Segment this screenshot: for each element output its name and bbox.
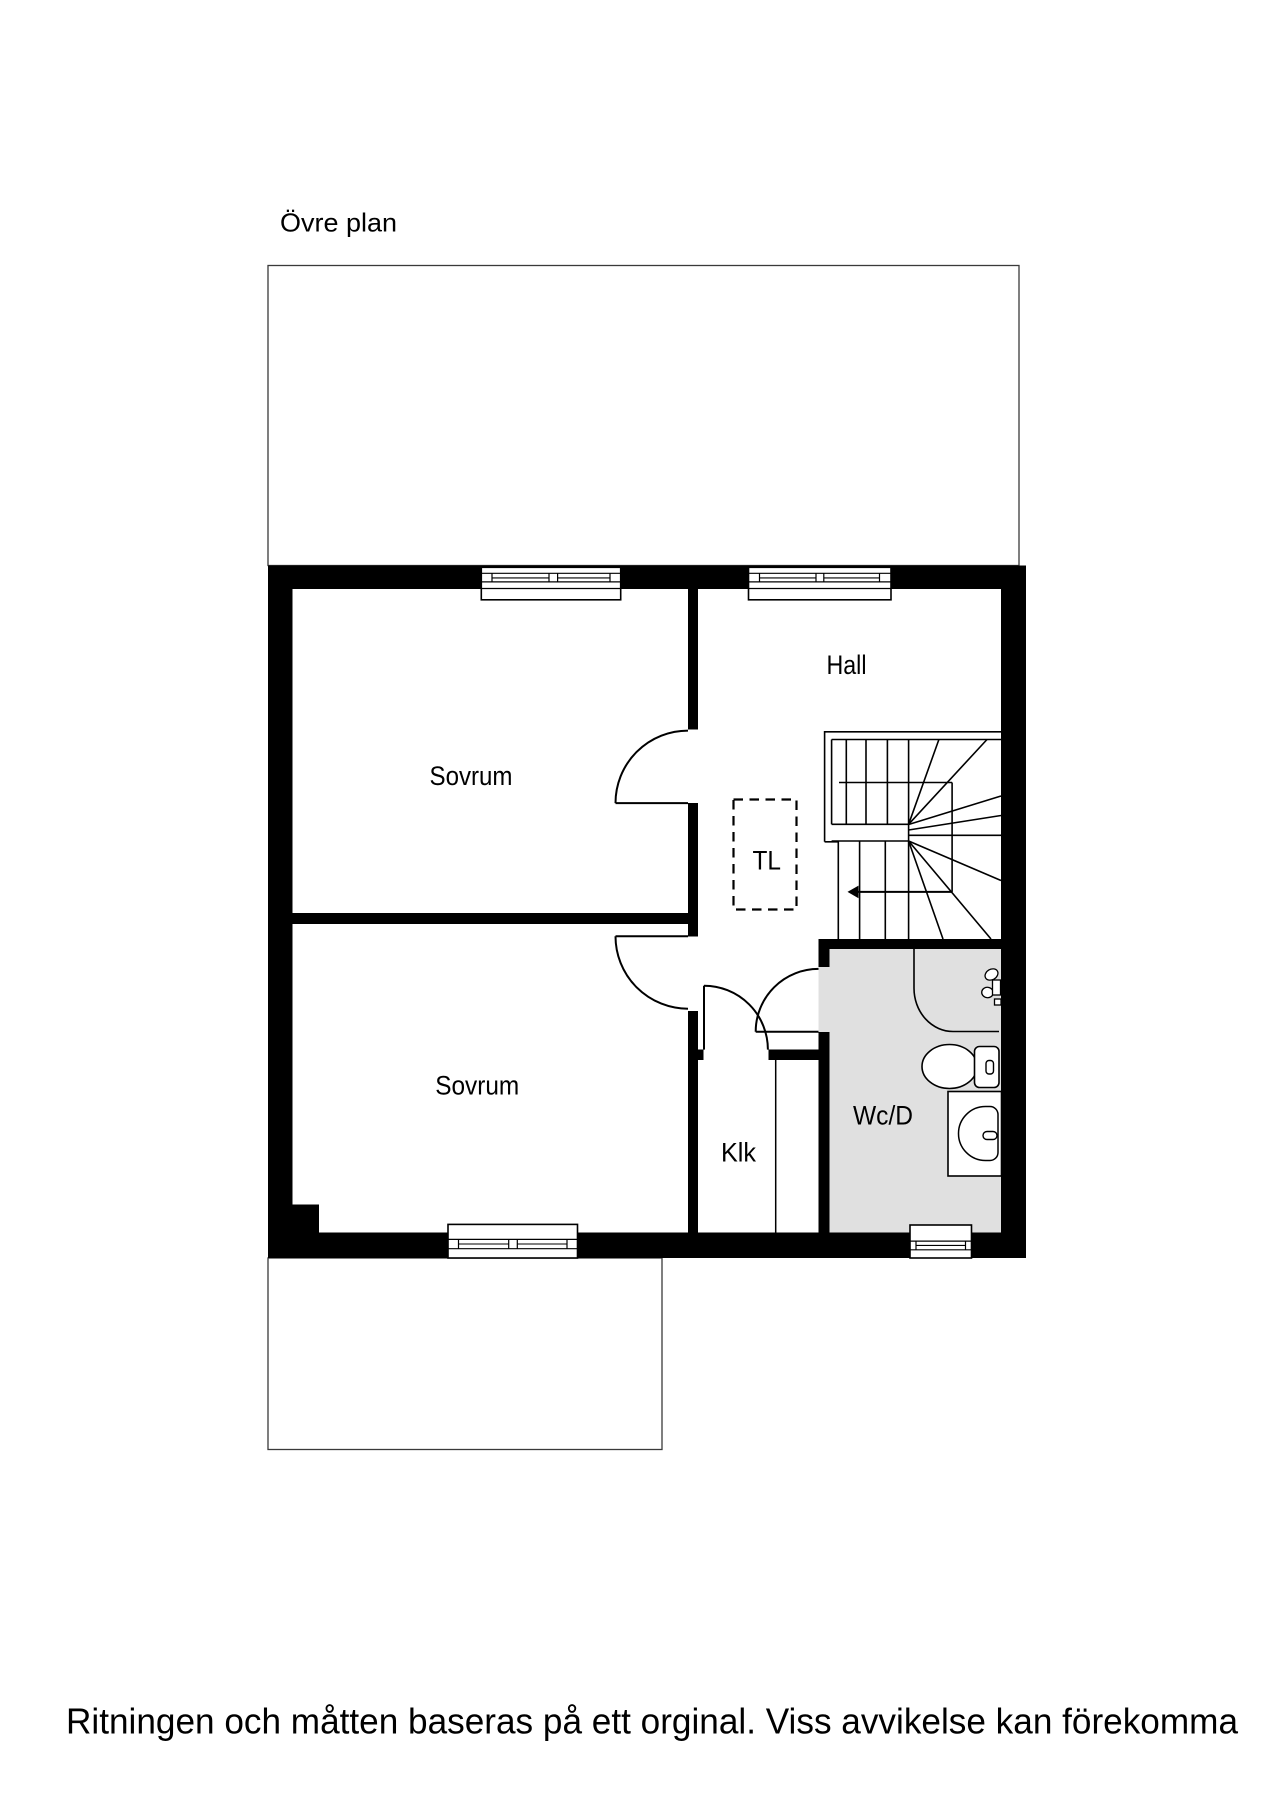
svg-text:Wc/D: Wc/D [853,1101,913,1131]
svg-text:Hall: Hall [827,650,867,680]
svg-text:Klk: Klk [721,1138,756,1168]
svg-text:Övre plan: Övre plan [280,207,397,237]
svg-text:Ritningen och måtten baseras p: Ritningen och måtten baseras på ett orgi… [66,1700,1239,1741]
svg-text:TL: TL [752,846,781,876]
svg-text:Sovrum: Sovrum [430,761,513,791]
svg-text:Sovrum: Sovrum [435,1070,519,1100]
